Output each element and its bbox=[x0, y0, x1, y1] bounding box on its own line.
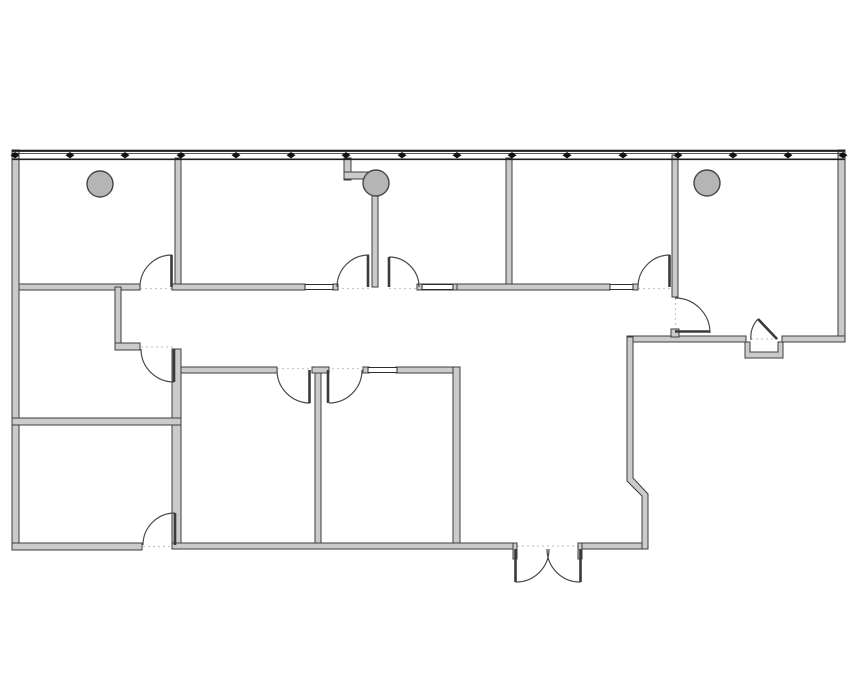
window-mullion-tick bbox=[342, 152, 351, 158]
block-divider-wall bbox=[315, 373, 321, 543]
window-mullion-tick bbox=[563, 152, 572, 158]
structural-column-1 bbox=[87, 171, 113, 197]
door-arc-office5 bbox=[675, 298, 710, 333]
window-mullion-tick bbox=[232, 152, 241, 158]
window-mullion-tick bbox=[453, 152, 462, 158]
floor-plan-page bbox=[0, 0, 855, 678]
door-arc-room-west bbox=[141, 349, 174, 382]
door-arc-office4 bbox=[638, 255, 670, 287]
window-mullion-tick bbox=[784, 152, 793, 158]
reception-north-wall-a bbox=[627, 336, 746, 342]
corridor-wall-seg1 bbox=[19, 284, 140, 290]
door-arc-office2 bbox=[337, 255, 369, 287]
window-mullion-tick bbox=[287, 152, 296, 158]
left-wing-nook-stub bbox=[115, 343, 140, 350]
block-north-wall-a bbox=[181, 367, 277, 373]
exterior-wall-south-right bbox=[582, 543, 648, 549]
door-leaf-entry-angled bbox=[758, 319, 777, 339]
sidelight-corridor-2 bbox=[422, 285, 453, 290]
partition-office4-office5 bbox=[672, 155, 678, 297]
exterior-wall-south-mid bbox=[172, 543, 513, 549]
reception-north-wall-b bbox=[782, 336, 845, 342]
floor-plan-canvas bbox=[0, 0, 855, 678]
block-north-wall-cap bbox=[312, 367, 329, 373]
window-mullion-tick bbox=[398, 152, 407, 158]
corridor-wall-seg2 bbox=[172, 284, 305, 290]
door-arc-exit-right bbox=[547, 549, 581, 582]
door-arc-office3 bbox=[389, 257, 419, 287]
block-east-wall bbox=[453, 367, 460, 543]
door-arc-block-left bbox=[277, 370, 310, 403]
exterior-wall-east bbox=[838, 150, 845, 342]
window-mullion-tick bbox=[177, 152, 186, 158]
left-wing-nook-wall bbox=[115, 287, 121, 349]
window-mullion-tick bbox=[121, 152, 130, 158]
partition-column-divider bbox=[372, 190, 378, 287]
window-mullion-tick bbox=[619, 152, 628, 158]
door-arc-exit-left bbox=[516, 549, 550, 582]
window-mullion-tick bbox=[729, 152, 738, 158]
structural-column-2 bbox=[363, 170, 389, 196]
structural-column-3 bbox=[694, 170, 720, 196]
exterior-wall-south-left bbox=[12, 543, 142, 550]
door-arc-entry-angled bbox=[751, 319, 758, 340]
exterior-wall-west bbox=[12, 150, 19, 550]
corridor-wall-seg4 bbox=[457, 284, 610, 290]
entry-alcove-wall bbox=[745, 342, 783, 358]
partition-office1-office2 bbox=[175, 158, 181, 287]
door-arc-block-right bbox=[329, 370, 362, 403]
corridor-wall-jamb2 bbox=[633, 284, 638, 290]
partition-office3-office4 bbox=[506, 158, 512, 287]
lobby-jog-wall bbox=[627, 337, 648, 549]
left-wing-mid-wall bbox=[12, 418, 181, 425]
window-mullion-tick bbox=[508, 152, 517, 158]
sidelight-block bbox=[368, 368, 397, 373]
block-north-wall-b bbox=[396, 367, 460, 373]
sidelight-corridor-3 bbox=[610, 285, 633, 290]
door-arc-room-sw bbox=[143, 513, 175, 545]
window-mullion-tick bbox=[66, 152, 75, 158]
sidelight-corridor-1 bbox=[305, 285, 333, 290]
door-arc-office1 bbox=[140, 255, 172, 287]
